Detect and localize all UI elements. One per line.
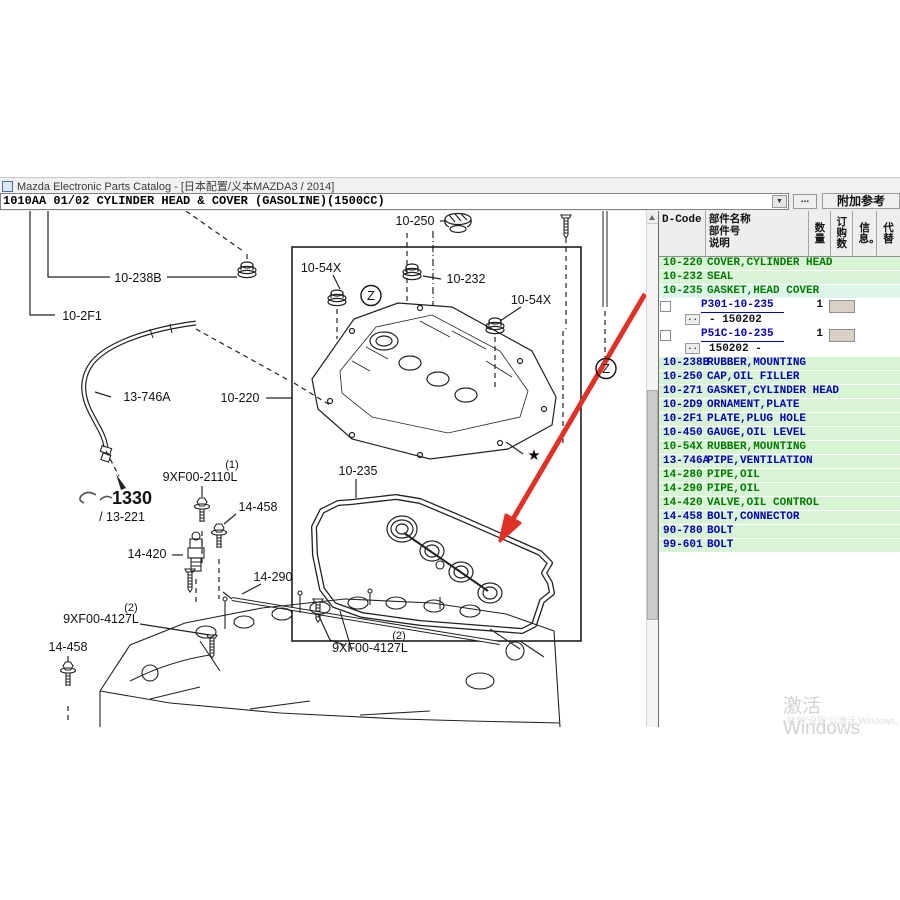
part-name: BOLT: [707, 539, 733, 551]
part-name: PLATE,PLUG HOLE: [707, 413, 806, 425]
quantity-value: 1: [807, 328, 823, 341]
diagram-part-label[interactable]: 10-2F1: [62, 309, 102, 323]
oil-filler-cap-drawing: [445, 214, 471, 233]
quantity-value: 1: [807, 299, 823, 312]
header-info: 信息。: [853, 211, 877, 256]
part-name: GASKET,CYLINDER HEAD: [707, 385, 839, 397]
table-row[interactable]: 10-450GAUGE,OIL LEVEL: [659, 427, 900, 441]
part-name: RUBBER,MOUNTING: [707, 357, 806, 369]
epc-window: Mazda Electronic Parts Catalog - [日本配置/义…: [0, 0, 900, 900]
table-row[interactable]: 10-2D9ORNAMENT,PLATE: [659, 399, 900, 413]
part-name: COVER,CYLINDER HEAD: [707, 257, 832, 269]
toolbar: 1010AA 01/02 CYLINDER HEAD & COVER (GASO…: [0, 193, 900, 212]
part-dcode: 10-54X: [659, 441, 707, 454]
part-dcode: 14-290: [659, 483, 707, 496]
table-row[interactable]: 10-235GASKET,HEAD COVER: [659, 285, 900, 299]
header-dcode: D-Code: [659, 211, 706, 256]
clip-icon: [80, 493, 112, 504]
red-arrow: [500, 294, 645, 541]
order-qty-box[interactable]: [829, 300, 855, 313]
date-range: - 150202: [709, 314, 762, 326]
part-dcode: 10-232: [659, 271, 707, 284]
part-name: PIPE,OIL: [707, 483, 760, 495]
part-dcode: 10-235: [659, 285, 707, 298]
parts-table: D-Code 部件名称 部件号 说明 数量 订购数 信息。 代替 10-220C…: [658, 211, 900, 727]
table-header: D-Code 部件名称 部件号 说明 数量 订购数 信息。 代替: [659, 211, 900, 257]
part-name: PIPE,VENTILATION: [707, 455, 813, 467]
date-range: 150202 -: [709, 343, 762, 355]
part-name: PIPE,OIL: [707, 469, 760, 481]
assembly-code-text: 1010AA 01/02 CYLINDER HEAD & COVER (GASO…: [3, 194, 385, 209]
mount-rubber-drawing: [238, 262, 256, 278]
part-dcode: 10-450: [659, 427, 707, 440]
part-name: GAUGE,OIL LEVEL: [707, 427, 806, 439]
screw-drawing: [561, 215, 571, 238]
part-dcode: 14-420: [659, 497, 707, 510]
part-dcode: 10-2D9: [659, 399, 707, 412]
window-titlebar: Mazda Electronic Parts Catalog - [日本配置/义…: [0, 177, 900, 194]
part-dcode: 13-746A: [659, 455, 707, 468]
diagram-part-label[interactable]: 10-232: [447, 272, 486, 286]
header-order-qty: 订购数: [831, 211, 853, 256]
table-row[interactable]: 90-780BOLT: [659, 525, 900, 539]
diagram-part-label[interactable]: 10-238B: [114, 271, 161, 285]
table-row[interactable]: 99-601BOLT: [659, 539, 900, 553]
diagram-part-label[interactable]: 10-54X: [511, 293, 552, 307]
browse-button[interactable]: ...: [793, 194, 817, 209]
part-dcode: 90-780: [659, 525, 707, 538]
diagram-part-label[interactable]: 1330: [112, 488, 152, 508]
diagram-part-label[interactable]: 14-458: [239, 500, 278, 514]
cylinder-head-drawing: [100, 589, 560, 727]
table-row[interactable]: 13-746APIPE,VENTILATION: [659, 455, 900, 469]
table-row[interactable]: 14-280PIPE,OIL: [659, 469, 900, 483]
part-dcode: 10-250: [659, 371, 707, 384]
table-row[interactable]: 14-290PIPE,OIL: [659, 483, 900, 497]
part-dcode: 10-238B: [659, 357, 707, 370]
window-title: Mazda Electronic Parts Catalog - [日本配置/义…: [17, 178, 334, 194]
part-name: SEAL: [707, 271, 733, 283]
part-number-row: P51C-10-2351..150202 -: [659, 328, 900, 357]
diagram-scrollbar[interactable]: [646, 211, 658, 727]
additional-reference-button[interactable]: 附加参考: [822, 193, 900, 209]
view-z-marker[interactable]: Z: [602, 361, 610, 376]
part-dcode: 14-280: [659, 469, 707, 482]
table-row[interactable]: 10-220COVER,CYLINDER HEAD: [659, 257, 900, 271]
diagram-part-label[interactable]: 14-458: [49, 640, 88, 654]
header-replace: 代替: [877, 211, 900, 256]
diagram-part-label[interactable]: 9XF00-2110L: [163, 470, 238, 484]
order-qty-box[interactable]: [829, 329, 855, 342]
part-number-row: P301-10-2351..- 150202: [659, 299, 900, 328]
bolt-drawing: [61, 662, 76, 686]
diagram-part-label[interactable]: 10-250: [396, 214, 435, 228]
table-row[interactable]: 14-458BOLT,CONNECTOR: [659, 511, 900, 525]
info-dots-button[interactable]: ..: [685, 343, 700, 354]
part-dcode: 10-2F1: [659, 413, 707, 426]
select-checkbox[interactable]: [660, 301, 671, 312]
table-row[interactable]: 10-2F1PLATE,PLUG HOLE: [659, 413, 900, 427]
diagram-part-label[interactable]: 10-54X: [301, 261, 342, 275]
diagram-part-label[interactable]: 9XF00-4127L: [63, 612, 139, 626]
diagram-part-label[interactable]: 10-235: [339, 464, 378, 478]
screw-drawing: [185, 569, 195, 592]
parts-diagram[interactable]: 10-25010-238B10-2F110-54X10-23210-54X13-…: [0, 211, 646, 727]
assembly-combobox[interactable]: 1010AA 01/02 CYLINDER HEAD & COVER (GASO…: [0, 193, 789, 210]
part-name: VALVE,OIL CONTROL: [707, 497, 819, 509]
windows-activation-watermark-sub: 转到“设置”以激活 Windows。: [787, 714, 900, 727]
diagram-part-label[interactable]: 14-420: [128, 547, 167, 561]
combo-dropdown-icon[interactable]: ▼: [772, 195, 787, 208]
part-name: ORNAMENT,PLATE: [707, 399, 799, 411]
bolt-drawing: [212, 524, 227, 548]
bolt-drawing: [195, 498, 210, 522]
scroll-up-icon[interactable]: [647, 211, 658, 224]
diagram-part-label[interactable]: 10-220: [221, 391, 260, 405]
table-row[interactable]: 14-420VALVE,OIL CONTROL: [659, 497, 900, 511]
part-dcode: 14-458: [659, 511, 707, 524]
part-name: CAP,OIL FILLER: [707, 371, 799, 383]
part-name: BOLT,CONNECTOR: [707, 511, 799, 523]
diagram-part-label[interactable]: 14-290: [254, 570, 293, 584]
part-dcode: 10-220: [659, 257, 707, 270]
main-area: 10-25010-238B10-2F110-54X10-23210-54X13-…: [0, 211, 900, 727]
header-qty: 数量: [809, 211, 831, 256]
diagram-part-label[interactable]: / 13-221: [99, 510, 145, 524]
table-row[interactable]: 10-250CAP,OIL FILLER: [659, 371, 900, 385]
part-number-link[interactable]: P51C-10-235: [701, 328, 784, 342]
parts-table-body: 10-220COVER,CYLINDER HEAD10-232SEAL10-23…: [659, 257, 900, 553]
info-dots-button[interactable]: ..: [685, 314, 700, 325]
mount-rubber-drawing: [328, 290, 346, 306]
header-part-name: 部件名称 部件号 说明: [706, 211, 810, 256]
part-name: BOLT: [707, 525, 733, 537]
leader-lines: [30, 211, 607, 723]
table-row[interactable]: 10-232SEAL: [659, 271, 900, 285]
star-footnote[interactable]: ★: [527, 447, 540, 464]
valve-cover-drawing: [312, 303, 556, 459]
scrollbar-thumb[interactable]: [647, 390, 658, 620]
part-number-link[interactable]: P301-10-235: [701, 299, 784, 313]
select-checkbox[interactable]: [660, 330, 671, 341]
view-z-marker[interactable]: Z: [367, 288, 375, 303]
app-icon: [2, 181, 13, 192]
table-row[interactable]: 10-54XRUBBER,MOUNTING: [659, 441, 900, 455]
part-name: GASKET,HEAD COVER: [707, 285, 819, 297]
part-dcode: 10-271: [659, 385, 707, 398]
table-row[interactable]: 10-271GASKET,CYLINDER HEAD: [659, 385, 900, 399]
part-name: RUBBER,MOUNTING: [707, 441, 806, 453]
seal-drawing: [403, 264, 421, 280]
diagram-part-label[interactable]: 13-746A: [123, 390, 171, 404]
diagram-part-label[interactable]: 9XF00-4127L: [332, 641, 408, 655]
table-row[interactable]: 10-238BRUBBER,MOUNTING: [659, 357, 900, 371]
part-dcode: 99-601: [659, 539, 707, 552]
